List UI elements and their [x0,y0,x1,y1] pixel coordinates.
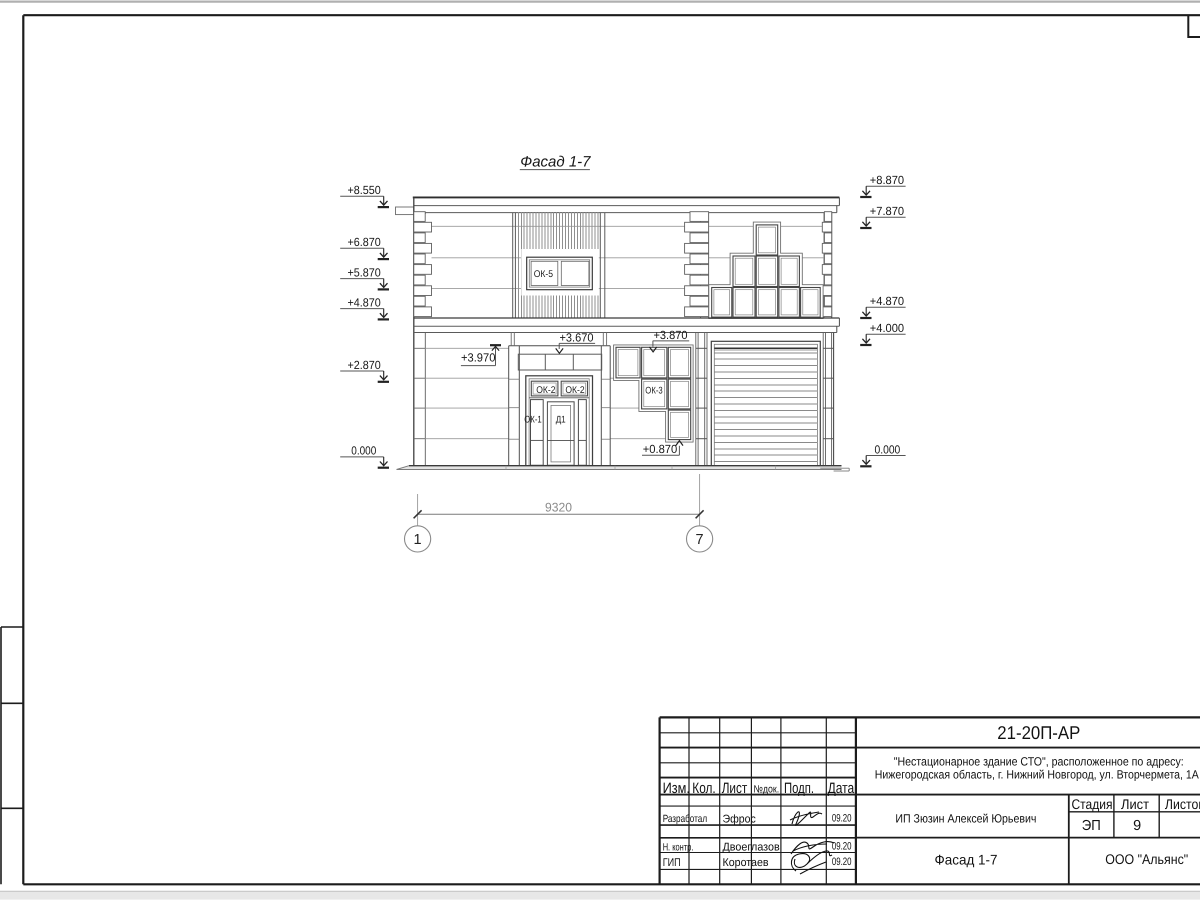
svg-text:Дата: Дата [828,780,855,797]
svg-text:№док.: №док. [753,783,779,795]
svg-text:+3.670: +3.670 [560,331,594,345]
svg-text:ОК-5: ОК-5 [534,269,553,280]
svg-text:Коротаев: Коротаев [723,857,769,869]
svg-text:09.20: 09.20 [832,856,852,868]
svg-text:+8.870: +8.870 [870,173,905,187]
svg-text:Д1: Д1 [556,415,566,426]
svg-text:Лист: Лист [722,780,748,797]
svg-text:Разработал: Разработал [663,813,707,825]
svg-text:+2.870: +2.870 [348,358,382,372]
svg-text:Двоеглазов: Двоеглазов [723,841,780,853]
svg-text:ОК-3: ОК-3 [645,386,662,397]
svg-text:+5.870: +5.870 [348,265,382,279]
svg-text:Стадия: Стадия [1072,796,1113,812]
svg-text:ОК-2: ОК-2 [536,385,555,396]
svg-text:ЭП: ЭП [1082,818,1101,834]
svg-text:Н. контр.: Н. контр. [663,841,694,853]
svg-text:09.20: 09.20 [832,812,852,824]
svg-text:ИП Зюзин Алексей Юрьевич: ИП Зюзин Алексей Юрьевич [895,811,1036,825]
svg-text:ООО "Альянс": ООО "Альянс" [1105,851,1188,867]
svg-text:ОК-1: ОК-1 [524,415,542,426]
svg-text:Листов: Листов [1165,796,1200,812]
svg-text:"Нестационарное здание СТО", р: "Нестационарное здание СТО", расположенн… [894,754,1184,768]
svg-text:+8.550: +8.550 [348,183,382,197]
svg-text:9320: 9320 [545,500,572,514]
svg-text:ГИП: ГИП [663,857,681,869]
svg-text:+3.870: +3.870 [654,328,688,342]
svg-text:+4.870: +4.870 [870,294,905,308]
svg-text:9: 9 [1133,818,1141,834]
svg-text:1: 1 [414,532,422,548]
svg-text:0.000: 0.000 [875,443,901,457]
svg-text:0.000: 0.000 [351,444,376,458]
svg-text:+3.970: +3.970 [461,350,496,364]
svg-text:7: 7 [696,532,704,548]
svg-text:Изм.: Изм. [663,780,690,797]
svg-text:Эфрос: Эфрос [723,813,757,825]
svg-text:+0.870: +0.870 [643,442,678,456]
svg-text:Нижегородская область, г. Нижн: Нижегородская область, г. Нижний Новгоро… [875,768,1199,782]
svg-text:Кол.: Кол. [692,780,715,797]
svg-text:Фасад 1-7: Фасад 1-7 [935,852,998,868]
svg-text:+7.870: +7.870 [870,204,905,218]
svg-text:+4.870: +4.870 [348,295,382,309]
svg-text:+4.000: +4.000 [870,321,905,335]
svg-text:Подп.: Подп. [784,780,814,797]
svg-text:ОК-2: ОК-2 [565,385,584,396]
svg-text:09.20: 09.20 [832,841,852,853]
svg-text:Лист: Лист [1121,796,1150,812]
svg-text:+6.870: +6.870 [348,235,382,249]
svg-text:21-20П-АР: 21-20П-АР [997,722,1080,743]
svg-text:Фасад 1-7: Фасад 1-7 [520,154,591,171]
